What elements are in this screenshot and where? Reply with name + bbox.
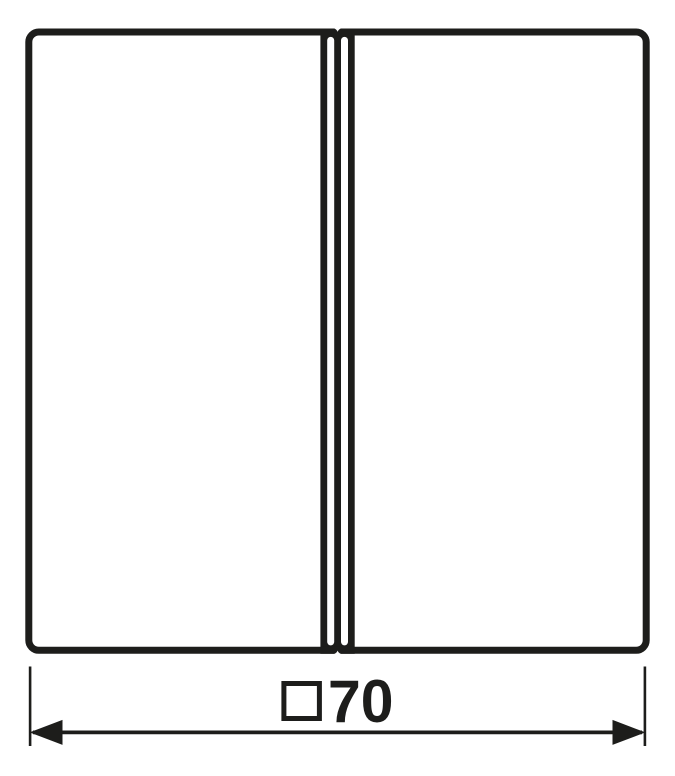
svg-text:70: 70 [328, 667, 394, 735]
